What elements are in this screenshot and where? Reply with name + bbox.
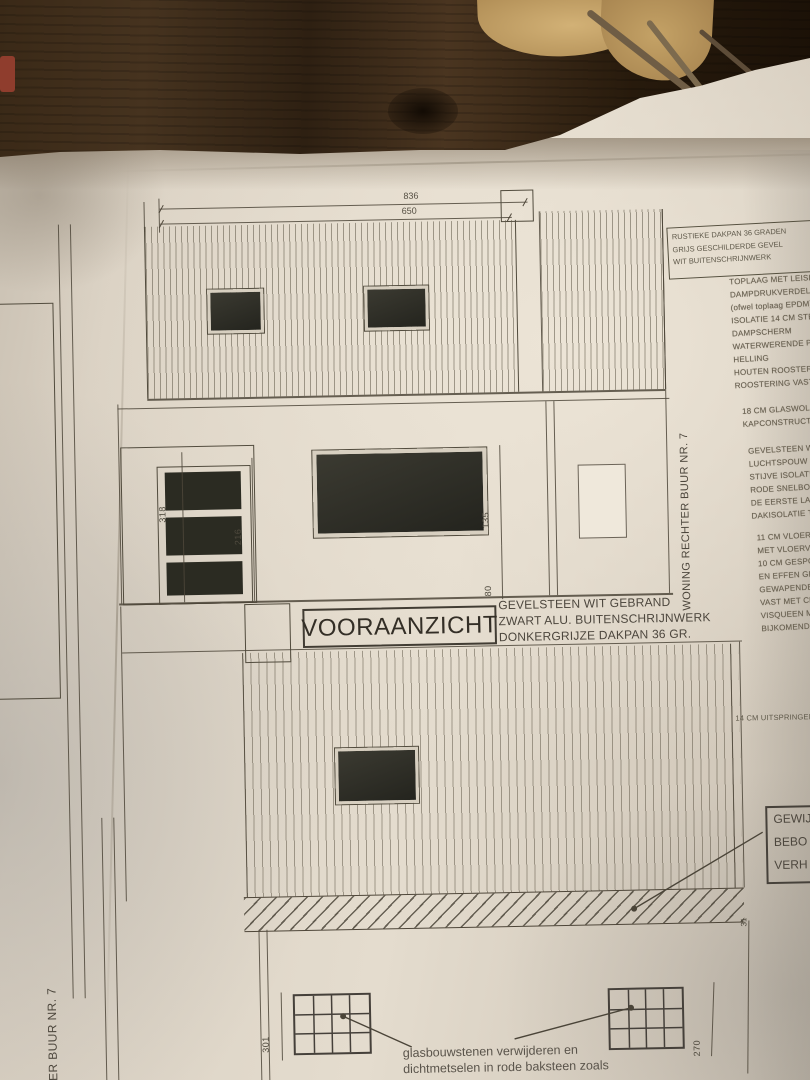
spec-annotations-sheet: RUSTIEKE DAKPAN 36 GRADEN GRIJS GESCHILD…	[0, 0, 810, 1080]
roof-finish-spec-box: RUSTIEKE DAKPAN 36 GRADEN GRIJS GESCHILD…	[666, 220, 810, 280]
red-paint-mark	[0, 56, 15, 92]
wood-knot	[388, 88, 458, 134]
roof-buildup-spec: TOPLAAG MET LEISLAG DAMPDRUKVERDELEND (o…	[729, 270, 810, 392]
attic-spec: 18 CM GLASWOL ME KAPCONSTRUCTIE	[742, 401, 810, 431]
photo-of-elevation-drawing: 836 650 318 216 13	[0, 0, 810, 1080]
spec-line: DAKISOLATIE TE	[751, 506, 810, 523]
spec-line: BIJKOMENDE	[761, 618, 810, 635]
floor-buildup-spec: 11 CM VLOERISOL MET VLOERVERW 10 CM GESP…	[756, 528, 810, 636]
wall-buildup-spec: GEVELSTEEN WIT LUCHTSPOUW 3 C STIJVE ISO…	[748, 441, 810, 523]
